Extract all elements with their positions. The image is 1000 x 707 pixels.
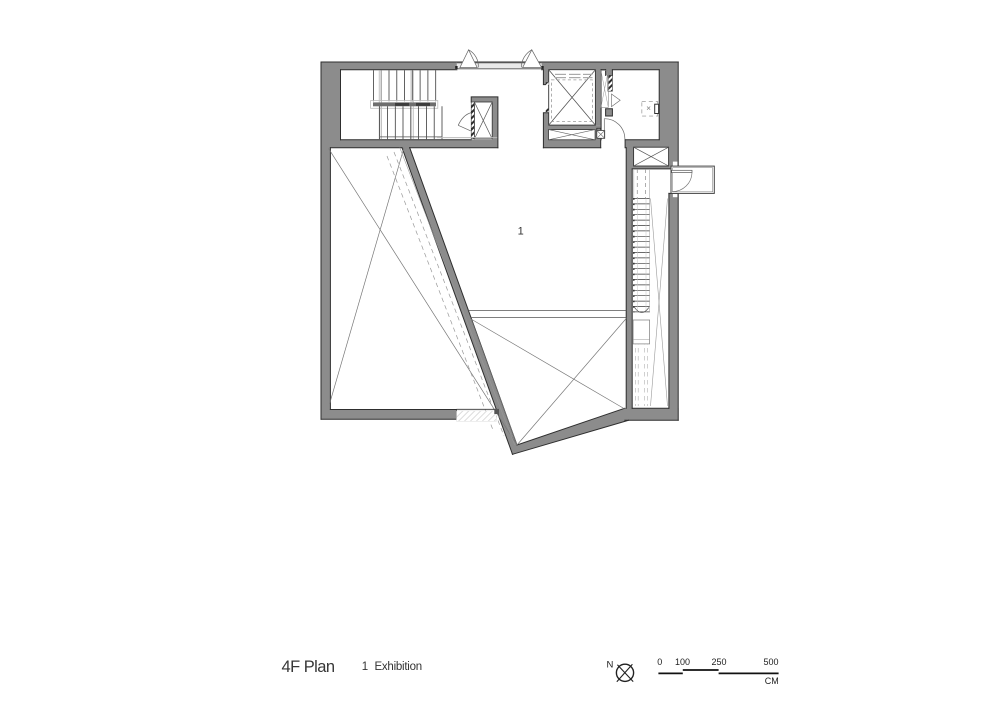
svg-text:500: 500 [764, 657, 779, 667]
svg-text:Exhibition: Exhibition [375, 661, 422, 673]
svg-text:1: 1 [362, 661, 368, 673]
svg-text:100: 100 [675, 657, 690, 667]
svg-text:250: 250 [712, 657, 727, 667]
svg-text:4F Plan: 4F Plan [282, 658, 335, 676]
svg-text:CM: CM [765, 676, 779, 686]
svg-text:N: N [607, 660, 614, 671]
svg-text:1: 1 [518, 226, 524, 238]
svg-text:0: 0 [657, 657, 662, 667]
